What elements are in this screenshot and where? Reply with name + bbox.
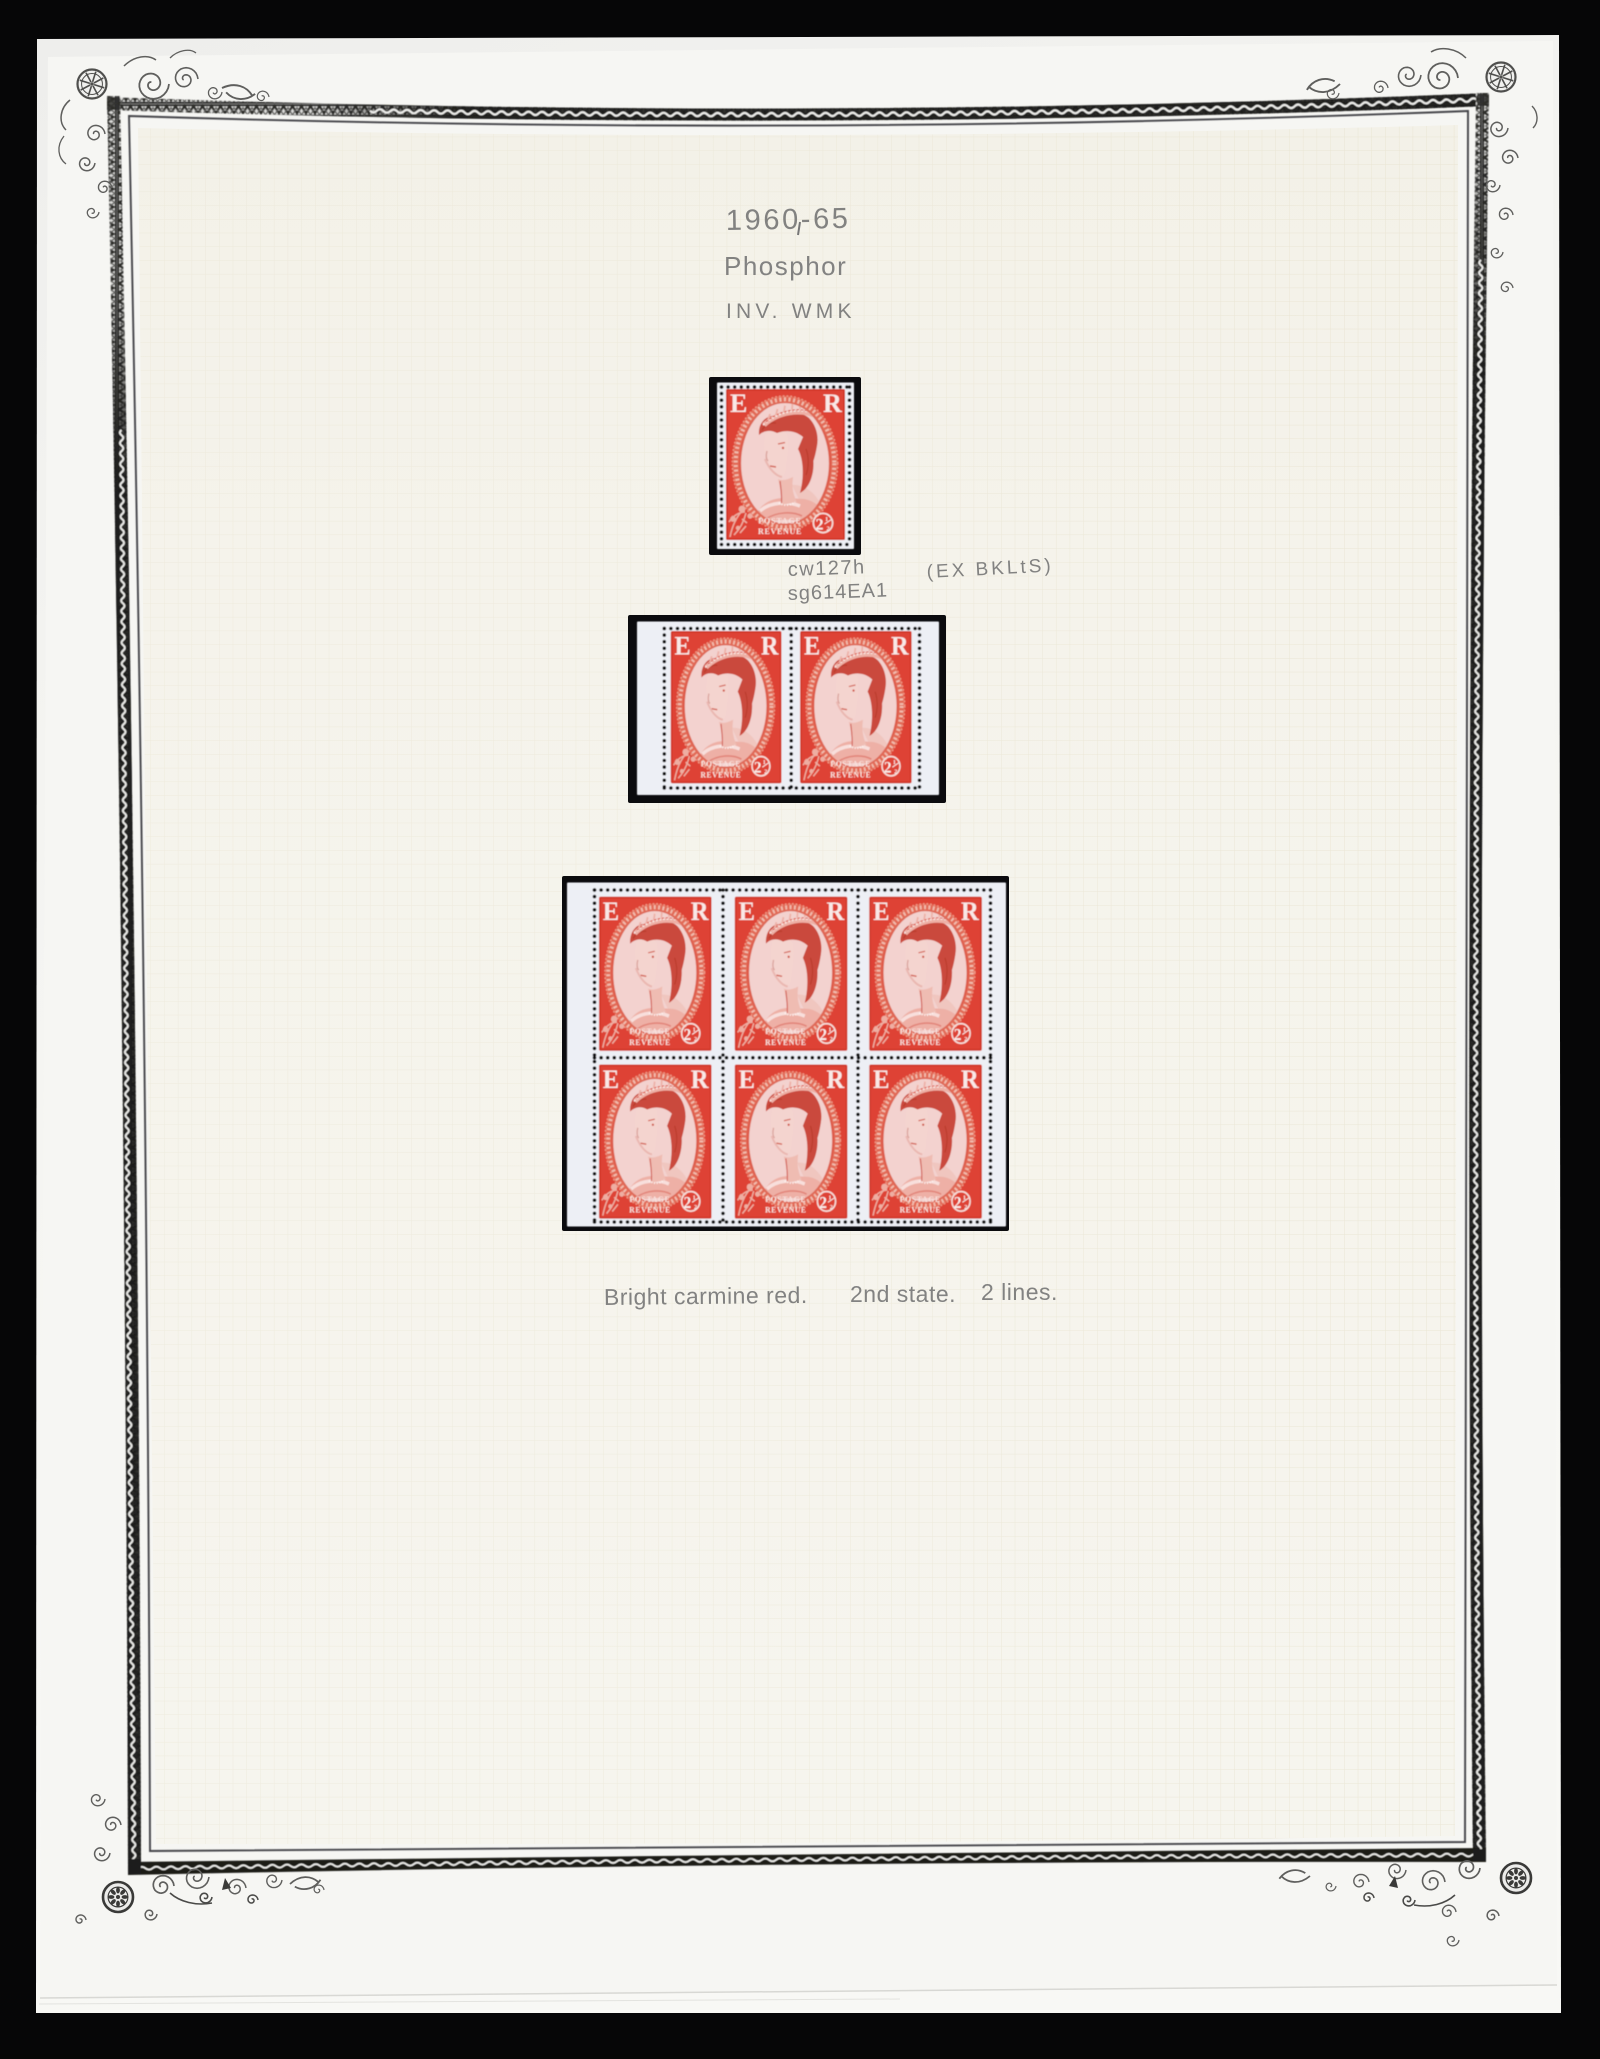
svg-text:cw127h: cw127h — [787, 556, 866, 581]
svg-text:2 lines.: 2 lines. — [981, 1279, 1058, 1305]
svg-text:INV. WMK: INV. WMK — [726, 300, 856, 323]
svg-text:Bright carmine red.: Bright carmine red. — [604, 1282, 808, 1310]
svg-text:sg614EA1: sg614EA1 — [787, 580, 888, 605]
svg-text:2nd state.: 2nd state. — [850, 1281, 956, 1307]
svg-text:1960-65: 1960-65 — [726, 203, 851, 237]
svg-text:Phosphor: Phosphor — [724, 251, 847, 281]
